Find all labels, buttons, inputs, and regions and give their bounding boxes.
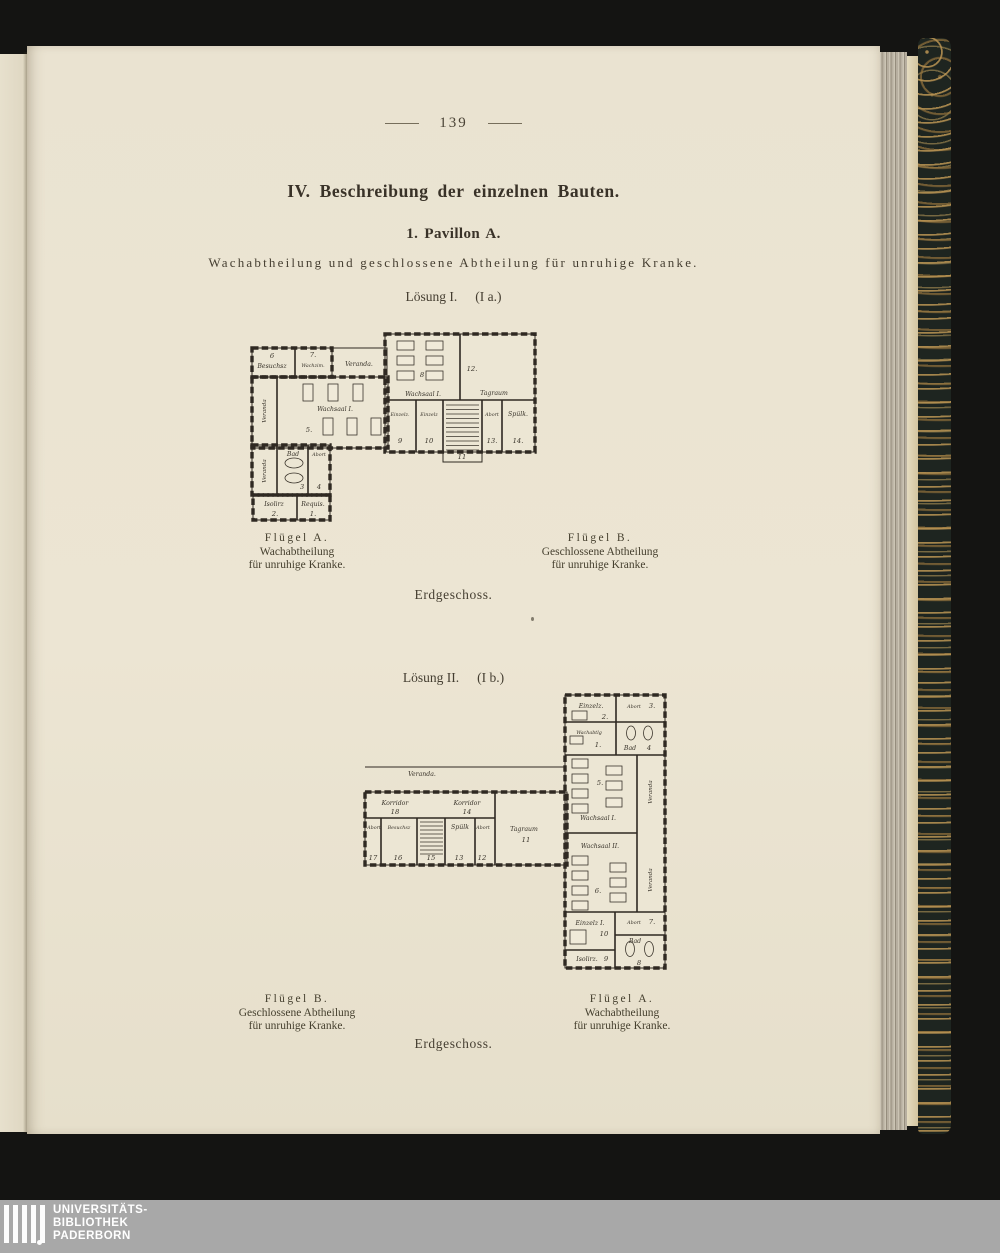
caption-line: Flügel A. xyxy=(187,532,407,546)
caption-line: Flügel B. xyxy=(187,993,407,1007)
room-number: 9 xyxy=(398,437,403,445)
caption-fluegel-a: Flügel A. Wachabtheilung für unruhige Kr… xyxy=(187,532,407,573)
caption-line: für unruhige Kranke. xyxy=(187,559,407,573)
room-number: 2. xyxy=(601,713,609,721)
room-label: Besuchsz xyxy=(256,363,287,370)
room-label: Wachsaal I. xyxy=(405,391,441,398)
room-number: 14. xyxy=(513,437,524,445)
ink-speck xyxy=(531,617,534,621)
room-label: Abort xyxy=(626,920,641,926)
library-name-line: PADERBORN xyxy=(53,1230,148,1243)
library-name-line: UNIVERSITÄTS- xyxy=(53,1204,148,1217)
room-label: Abort xyxy=(475,825,490,831)
room-number: 13 xyxy=(455,854,464,862)
room-label: Spülk. xyxy=(508,411,528,418)
book-edge-strip xyxy=(907,56,918,1126)
room-number: 5. xyxy=(306,426,313,434)
room-number: 1. xyxy=(310,510,317,518)
room-number: 18 xyxy=(391,808,400,816)
room-label: Veranda xyxy=(648,780,654,803)
caption-line: Wachabtheilung xyxy=(512,1007,732,1021)
library-banner: UNIVERSITÄTS- BIBLIOTHEK PADERBORN xyxy=(0,1200,1000,1253)
library-name-line: BIBLIOTHEK xyxy=(53,1217,148,1230)
caption-line: für unruhige Kranke. xyxy=(490,559,710,573)
room-label: Einzelz I. xyxy=(574,920,604,927)
room-label: Isolirz. xyxy=(575,956,598,963)
subtitle: Wachabtheilung und geschlossene Abtheilu… xyxy=(27,255,880,271)
room-label: Spülk xyxy=(451,824,469,831)
room-label: Einzelz. xyxy=(578,703,604,710)
caption-fluegel-b: Flügel B. Geschlossene Abtheilung für un… xyxy=(490,532,710,573)
room-number: 16 xyxy=(394,854,403,862)
room-number: 7. xyxy=(310,351,317,359)
room-number: 1. xyxy=(595,741,602,749)
room-number: 2. xyxy=(271,510,279,518)
room-number: 13. xyxy=(487,437,498,445)
logo-bar xyxy=(40,1205,45,1243)
room-number: 11 xyxy=(522,836,531,844)
caption-fluegel-b: Flügel B. Geschlossene Abtheilung für un… xyxy=(187,993,407,1034)
room-number: 10 xyxy=(600,930,609,938)
room-label: Wachabtlg xyxy=(576,730,602,736)
floor-plan-2: Veranda. Korridor 18 Korridor 14 Abort 1… xyxy=(360,692,670,970)
logo-bar xyxy=(4,1205,9,1243)
section-title: IV. Beschreibung der einzelnen Bauten. xyxy=(27,181,880,202)
floor-label-2: Erdgeschoss. xyxy=(27,1036,880,1052)
room-number: 12 xyxy=(478,854,487,862)
room-label: Wachsaal I. xyxy=(317,406,353,413)
room-label: Wachzim. xyxy=(301,363,325,369)
room-number: 6. xyxy=(595,887,602,895)
room-number: 5. xyxy=(597,779,604,787)
page-number: 139 xyxy=(439,115,468,132)
caption-line: für unruhige Kranke. xyxy=(187,1020,407,1034)
solution-1-variant: (I a.) xyxy=(475,289,501,304)
page-header: 139 xyxy=(27,115,880,132)
room-number: 12. xyxy=(467,365,478,373)
room-label: Bad xyxy=(628,938,641,945)
room-label: Bad xyxy=(286,451,299,458)
floor-label-1: Erdgeschoss. xyxy=(27,587,880,603)
room-label: Einzelz xyxy=(419,412,438,418)
room-number: 9 xyxy=(604,955,609,963)
room-label: Veranda. xyxy=(408,771,436,778)
plan1-walls xyxy=(252,334,535,520)
room-number: 3. xyxy=(649,702,656,710)
caption-line: Flügel A. xyxy=(512,993,732,1007)
room-label: Abort xyxy=(626,704,641,710)
room-label: Veranda xyxy=(648,868,654,891)
room-label: Requis. xyxy=(300,501,324,508)
room-number: 8 xyxy=(637,959,642,967)
solution-1-label: Lösung I.(I a.) xyxy=(27,289,880,305)
room-number: 3 xyxy=(300,483,304,491)
room-label: Abort xyxy=(311,452,326,458)
room-label: Bad xyxy=(623,745,636,752)
caption-line: für unruhige Kranke. xyxy=(512,1020,732,1034)
room-number: 14 xyxy=(463,808,472,816)
room-label: Veranda xyxy=(262,459,268,482)
room-number: 10 xyxy=(425,437,434,445)
room-number: 11 xyxy=(458,453,467,461)
room-label: Veranda. xyxy=(345,361,373,368)
logo-dot xyxy=(37,1240,42,1245)
room-number: 7. xyxy=(649,918,656,926)
caption-fluegel-a: Flügel A. Wachabtheilung für unruhige Kr… xyxy=(512,993,732,1034)
scan-viewport: 139 IV. Beschreibung der einzelnen Baute… xyxy=(0,0,1000,1253)
floor-plan-1: Veranda. 6 Besuchsz 7. Wachzim. Veranda … xyxy=(247,329,537,525)
subsection-title: 1. Pavillon A. xyxy=(27,226,880,243)
room-label: Korridor xyxy=(381,800,410,807)
room-label: Abort xyxy=(366,825,381,831)
solution-2-variant: (I b.) xyxy=(477,670,504,685)
library-logo-icon xyxy=(4,1205,49,1243)
page-number-dash xyxy=(385,123,419,124)
room-label: Wachsaal II. xyxy=(581,843,619,850)
room-label: Wachsaal I. xyxy=(580,815,616,822)
room-label: Abort xyxy=(484,412,499,418)
library-name: UNIVERSITÄTS- BIBLIOTHEK PADERBORN xyxy=(53,1204,148,1243)
room-label: Tagraum xyxy=(480,390,508,397)
caption-line: Wachabtheilung xyxy=(187,546,407,560)
room-number: 6 xyxy=(270,352,275,360)
book-page: 139 IV. Beschreibung der einzelnen Baute… xyxy=(27,46,880,1134)
book-cover xyxy=(918,38,951,1134)
room-number: 17 xyxy=(369,854,378,862)
room-label: Veranda xyxy=(262,399,268,422)
solution-2-name: Lösung II. xyxy=(403,670,459,685)
room-label: Einzelz. xyxy=(389,412,410,418)
page-number-dash xyxy=(488,123,522,124)
room-number: 15 xyxy=(427,854,436,862)
caption-line: Geschlossene Abtheilung xyxy=(187,1007,407,1021)
book-fore-edge xyxy=(880,52,907,1130)
room-number: 8 xyxy=(420,371,425,379)
logo-bar xyxy=(22,1205,27,1243)
room-label: Isolirz xyxy=(263,501,284,508)
room-label: Tagraum xyxy=(510,826,538,833)
caption-line: Geschlossene Abtheilung xyxy=(490,546,710,560)
room-label: Korridor xyxy=(453,800,482,807)
room-label: Besuchsz xyxy=(387,825,411,831)
logo-bar xyxy=(13,1205,18,1243)
solution-2-label: Lösung II.(I b.) xyxy=(27,670,880,686)
logo-bar xyxy=(31,1205,36,1243)
solution-1-name: Lösung I. xyxy=(406,289,458,304)
room-number: 4 xyxy=(646,744,651,752)
caption-line: Flügel B. xyxy=(490,532,710,546)
room-number: 4 xyxy=(316,483,321,491)
